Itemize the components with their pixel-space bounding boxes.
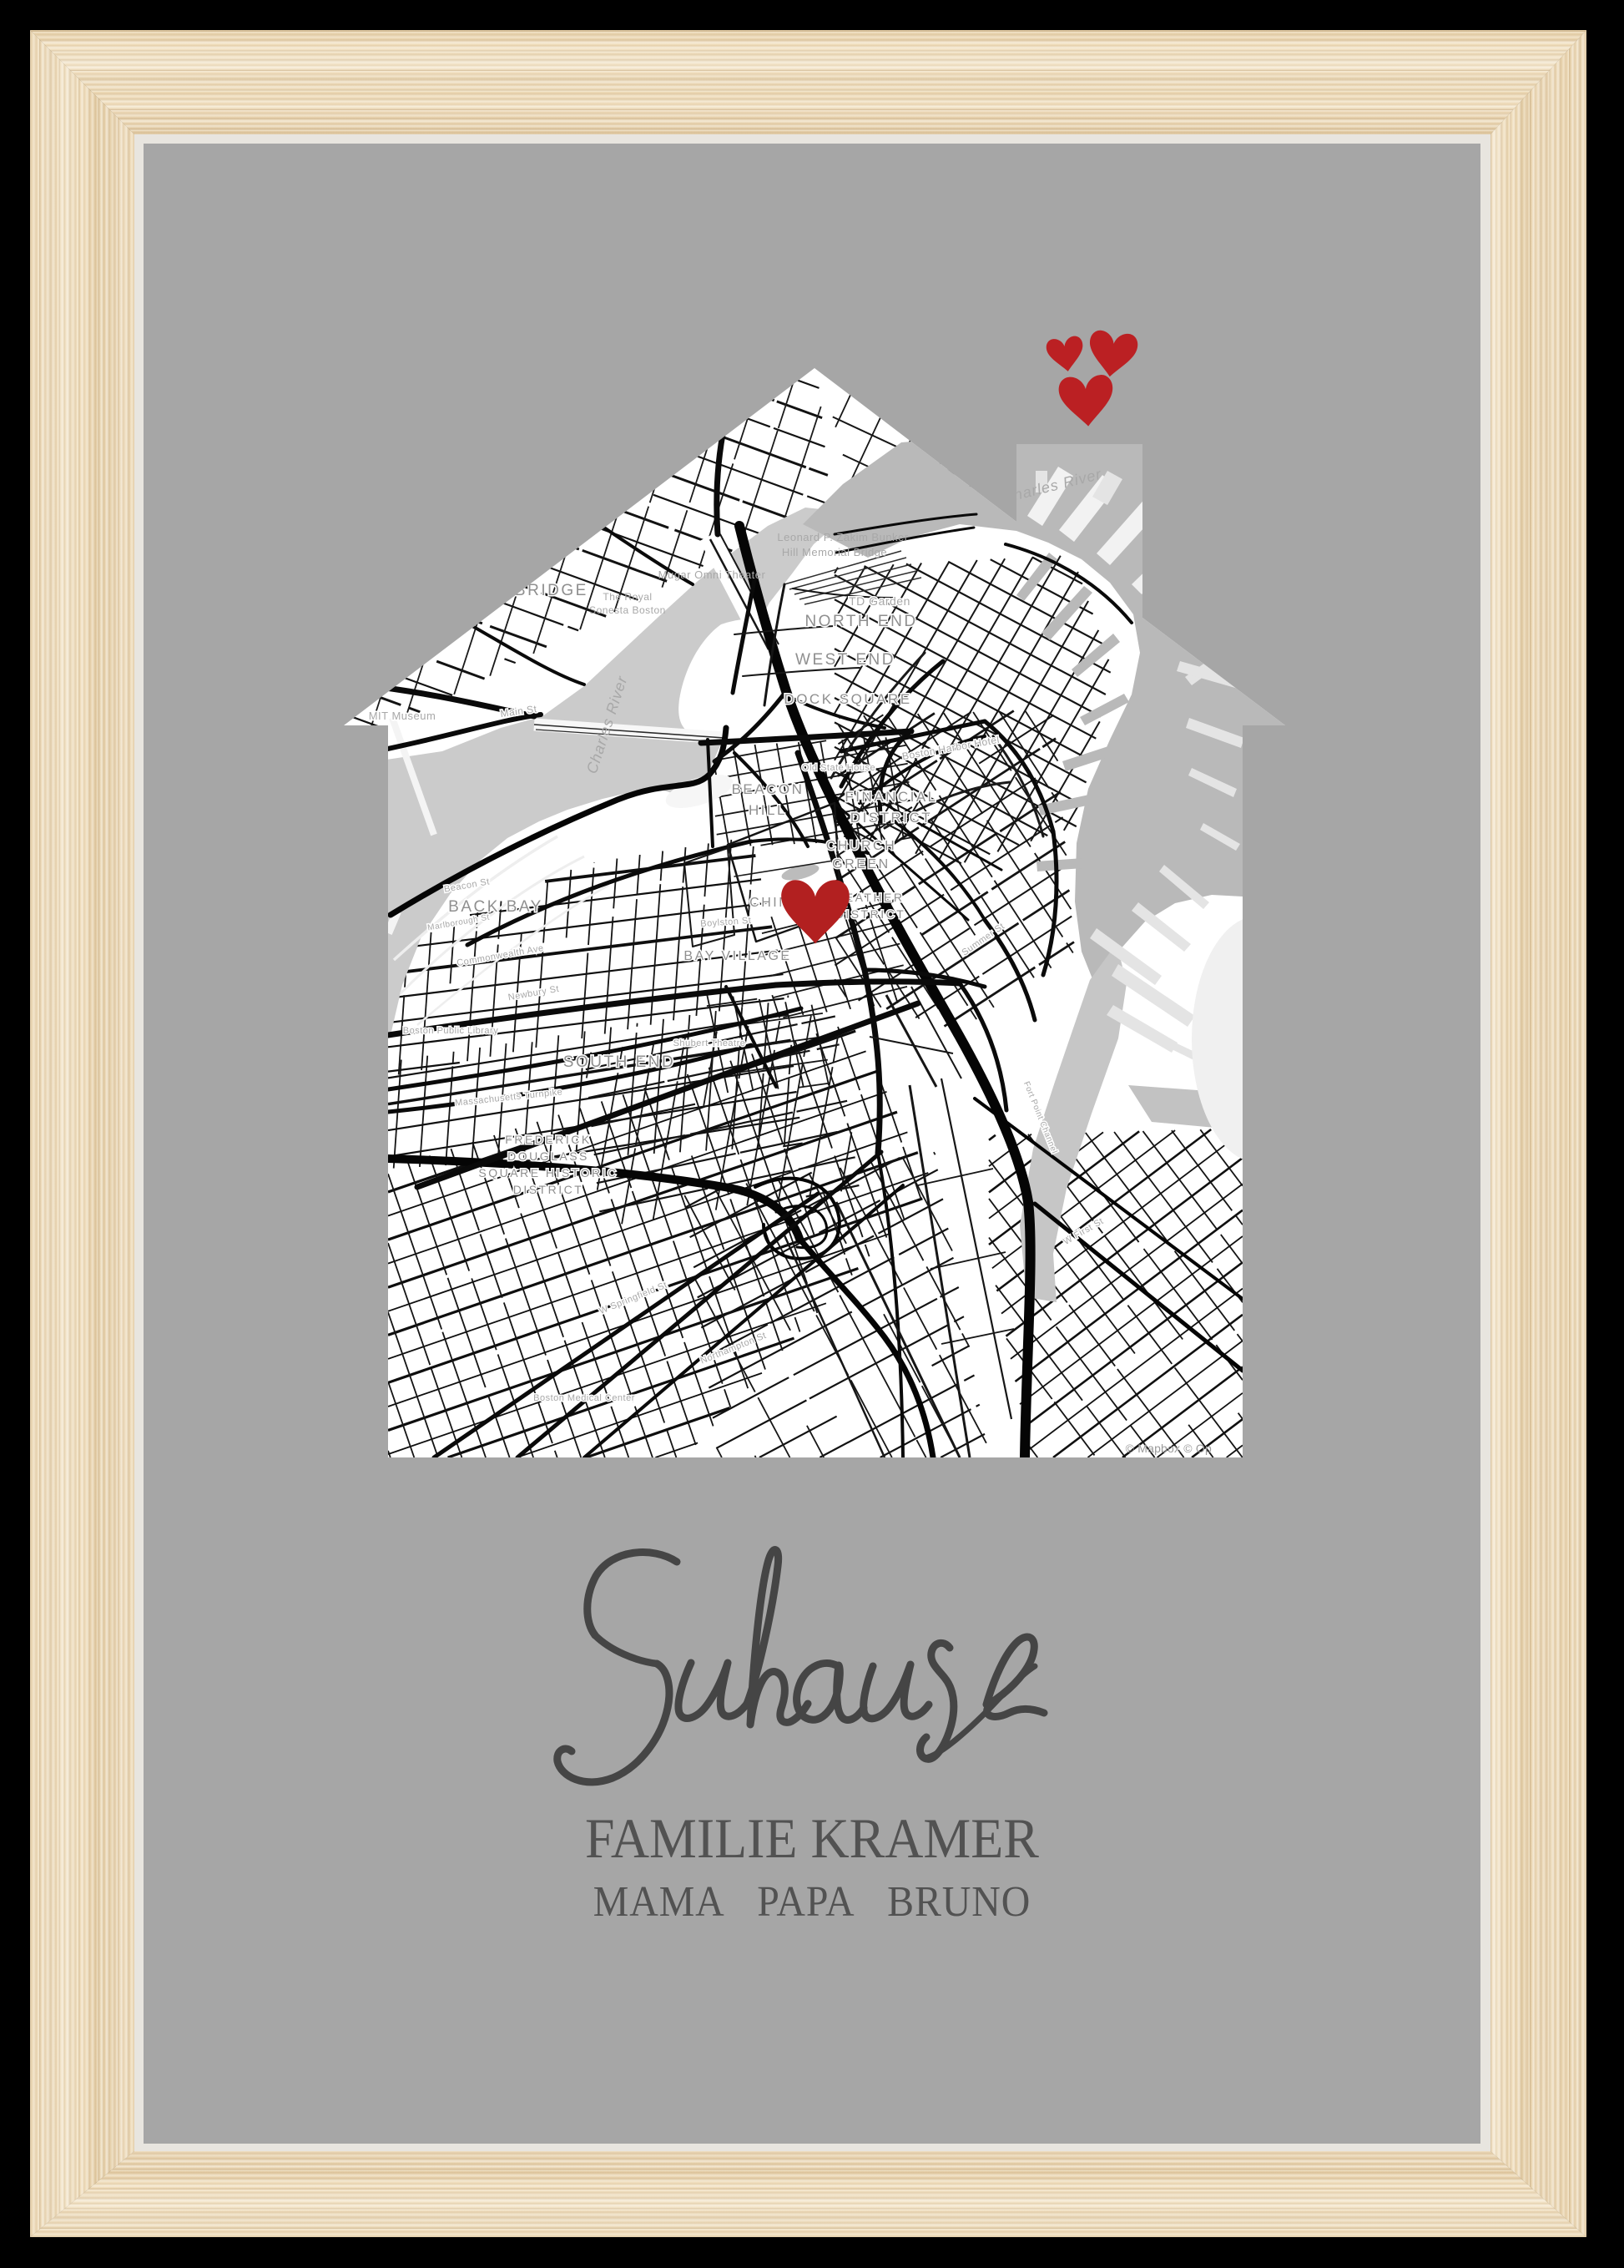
svg-text:DISTRICT: DISTRICT xyxy=(513,1183,584,1196)
svg-text:Sonesta Boston: Sonesta Boston xyxy=(589,604,666,616)
svg-text:FINANCIAL: FINANCIAL xyxy=(845,789,937,805)
svg-text:The Royal: The Royal xyxy=(603,591,652,603)
svg-text:Leonard P. Zakim Bunker: Leonard P. Zakim Bunker xyxy=(777,531,908,543)
svg-text:SOUTH END: SOUTH END xyxy=(563,1053,675,1071)
svg-text:FREDERICK: FREDERICK xyxy=(505,1133,591,1146)
svg-text:BAY VILLAGE: BAY VILLAGE xyxy=(683,949,791,963)
svg-text:CHURCH: CHURCH xyxy=(826,839,896,853)
svg-text:Old State House: Old State House xyxy=(802,763,875,773)
svg-text:MIT Museum: MIT Museum xyxy=(369,710,436,722)
svg-text:GREEN: GREEN xyxy=(832,857,890,871)
svg-text:NORTH END: NORTH END xyxy=(804,613,917,630)
svg-text:CAMBRIDGE: CAMBRIDGE xyxy=(473,582,588,599)
svg-text:TD Garden: TD Garden xyxy=(849,594,910,608)
svg-text:Shubert Theatre: Shubert Theatre xyxy=(673,1038,746,1048)
svg-text:DOCK SQUARE: DOCK SQUARE xyxy=(784,691,911,707)
svg-text:DOUGLASS: DOUGLASS xyxy=(507,1149,589,1163)
svg-text:DISTRICT: DISTRICT xyxy=(835,907,906,921)
svg-text:BACK BAY: BACK BAY xyxy=(448,898,543,916)
svg-text:Hill Memorial Bridge: Hill Memorial Bridge xyxy=(782,546,887,558)
svg-text:Mugar Omni Theater: Mugar Omni Theater xyxy=(658,568,766,581)
svg-text:WEST END: WEST END xyxy=(795,651,895,669)
svg-text:© Mapbox © Op: © Mapbox © Op xyxy=(1126,1442,1212,1455)
svg-text:HILL: HILL xyxy=(749,802,787,818)
svg-text:DISTRICT: DISTRICT xyxy=(850,810,932,826)
svg-text:Boston Medical Center: Boston Medical Center xyxy=(533,1393,635,1403)
svg-text:Boston Public Library: Boston Public Library xyxy=(403,1026,498,1036)
svg-text:BEACON: BEACON xyxy=(732,781,804,797)
svg-text:SQUARE HISTORIC: SQUARE HISTORIC xyxy=(478,1166,618,1179)
